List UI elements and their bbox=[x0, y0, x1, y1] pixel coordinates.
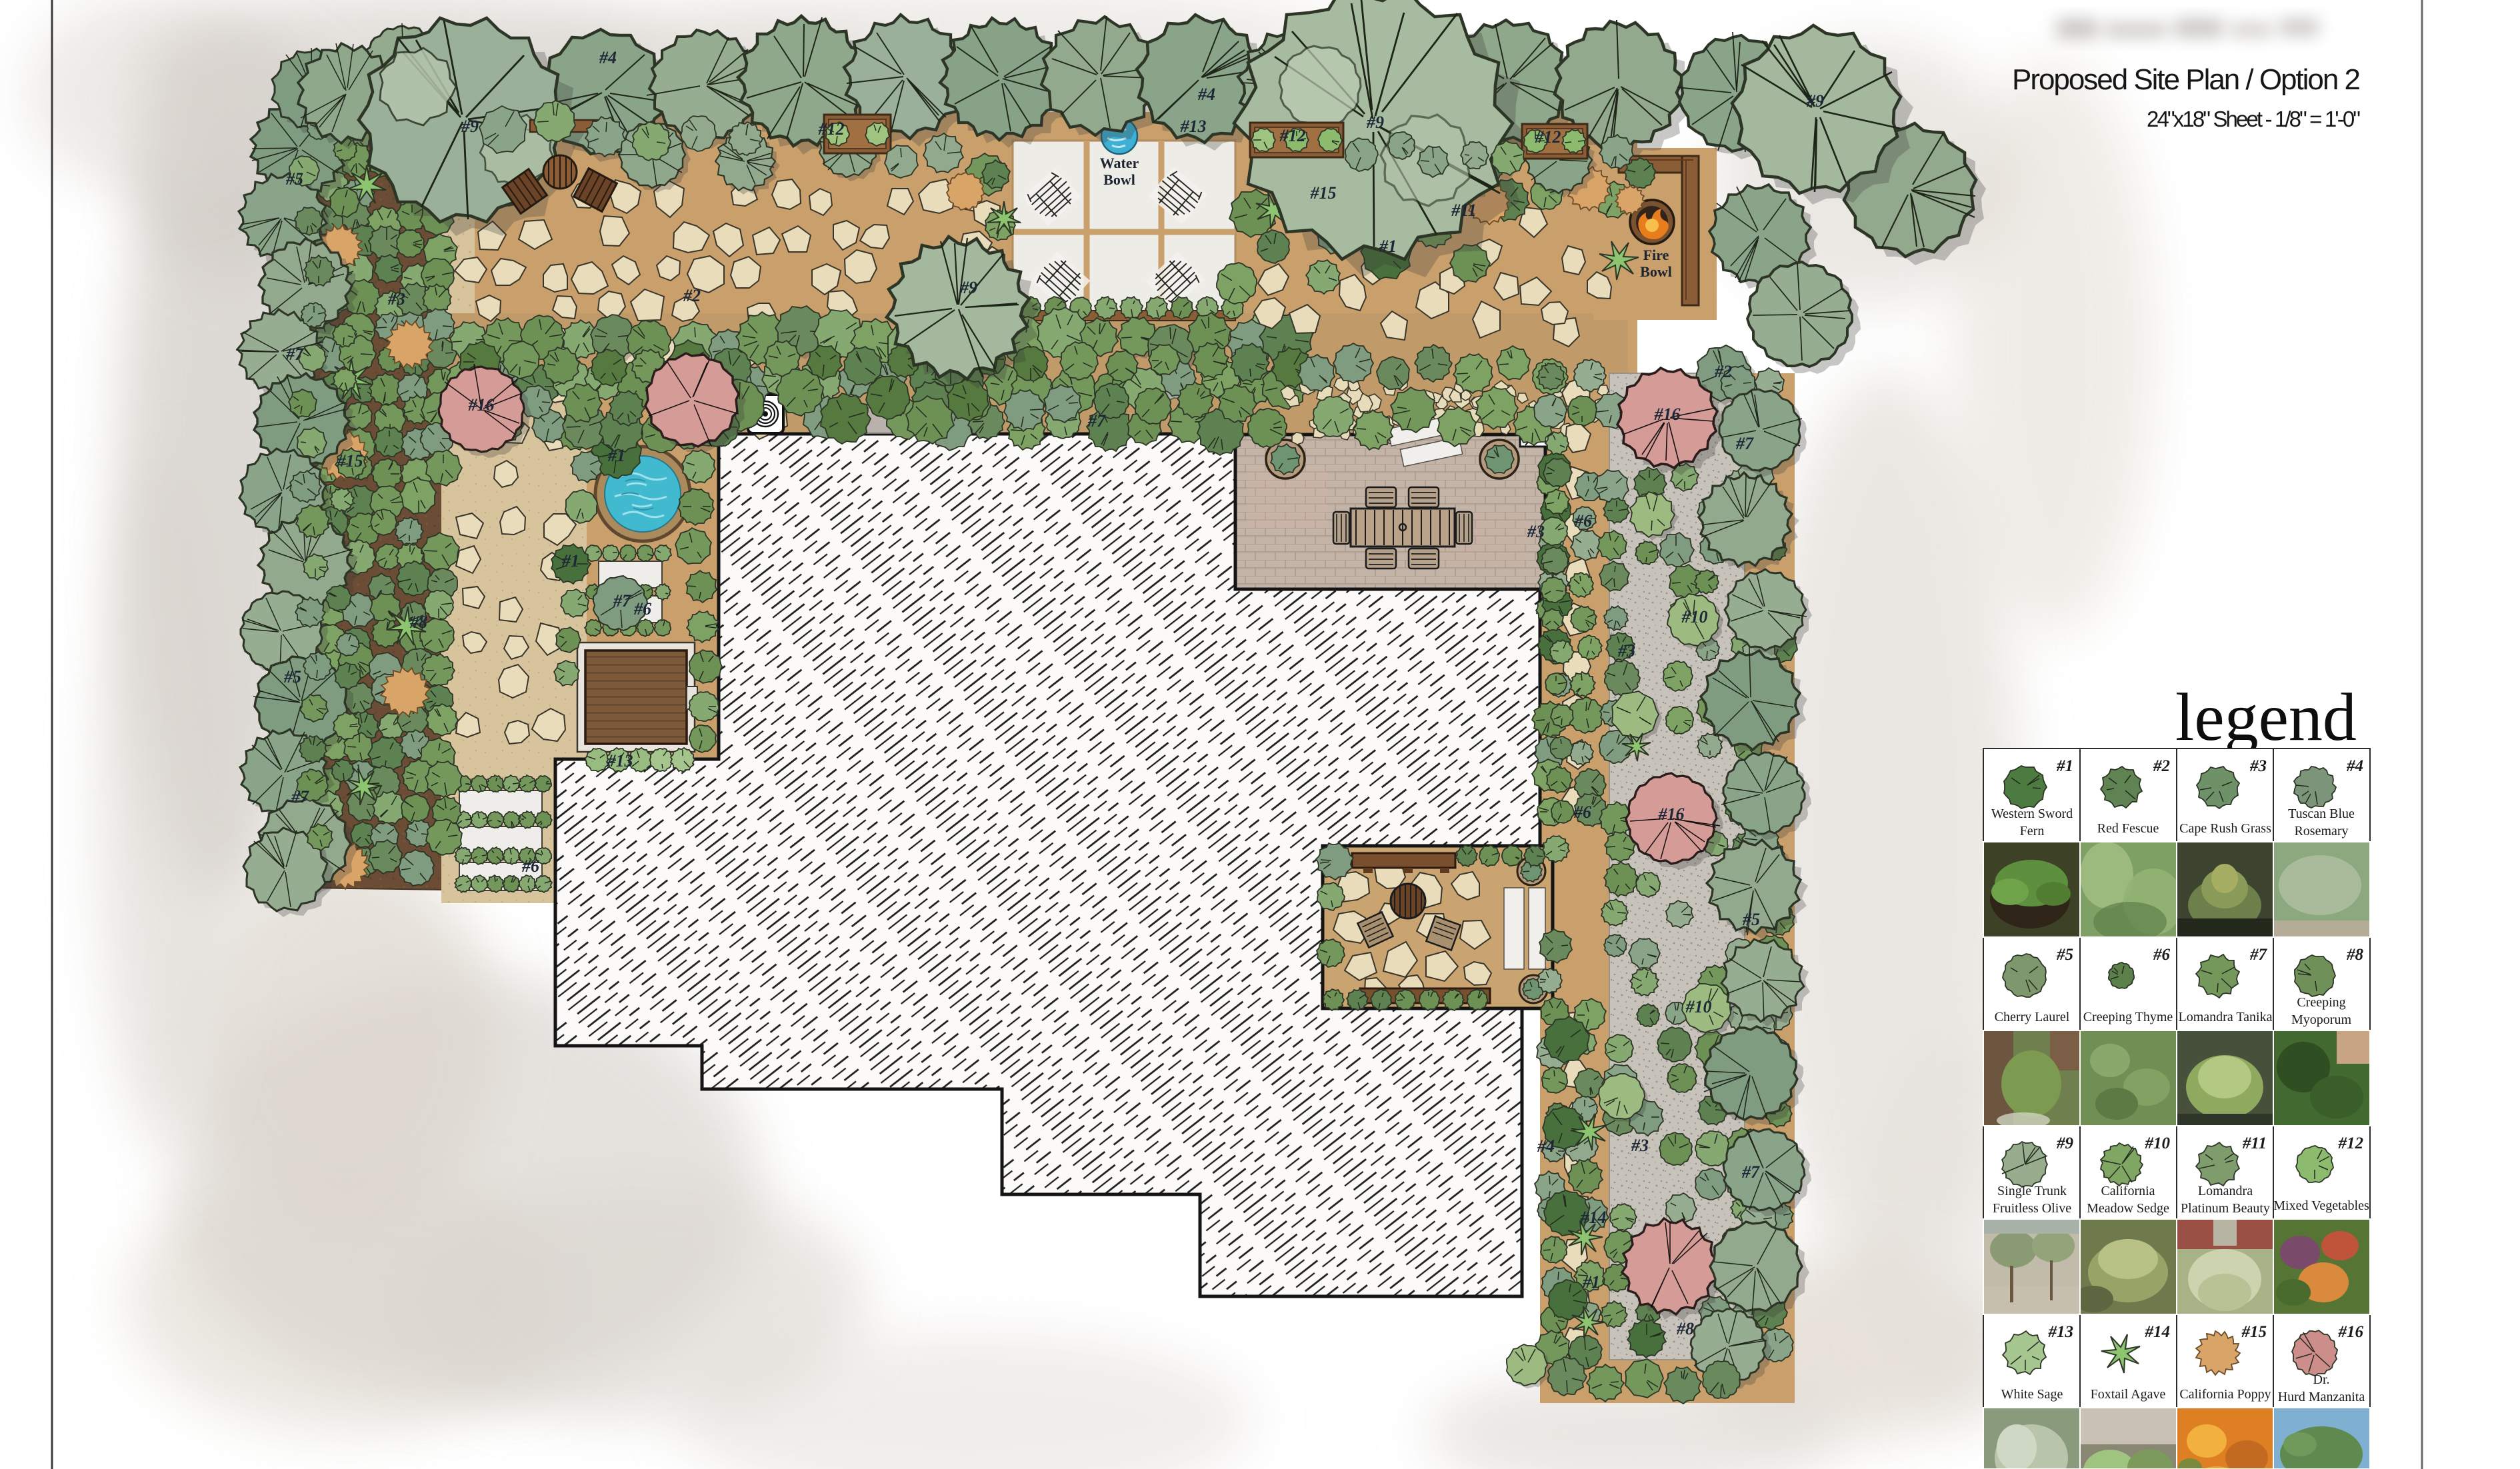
svg-text:Red Fescue: Red Fescue bbox=[2097, 821, 2159, 836]
svg-text:#10: #10 bbox=[1685, 997, 1712, 1016]
svg-text:#15: #15 bbox=[2241, 1323, 2267, 1341]
svg-text:#6: #6 bbox=[2153, 946, 2171, 964]
svg-text:#12: #12 bbox=[1279, 126, 1306, 145]
svg-text:#6: #6 bbox=[633, 599, 651, 619]
svg-text:#6: #6 bbox=[521, 856, 539, 876]
svg-text:#12: #12 bbox=[818, 119, 845, 139]
svg-text:#7: #7 bbox=[2249, 946, 2268, 964]
svg-text:#2: #2 bbox=[683, 286, 701, 305]
svg-text:White Sage: White Sage bbox=[2001, 1387, 2063, 1402]
svg-text:Fire: Fire bbox=[1643, 247, 1669, 263]
svg-text:#12: #12 bbox=[1535, 127, 1561, 147]
svg-text:#8: #8 bbox=[409, 613, 427, 632]
svg-text:#5: #5 bbox=[1742, 910, 1760, 929]
svg-text:legend: legend bbox=[2175, 680, 2357, 755]
svg-text:#3: #3 bbox=[1527, 522, 1545, 541]
svg-text:#1: #1 bbox=[2056, 757, 2073, 775]
svg-text:Single Trunk: Single Trunk bbox=[1997, 1184, 2067, 1198]
svg-text:#16: #16 bbox=[1658, 804, 1685, 824]
svg-text:#11: #11 bbox=[1451, 201, 1477, 220]
svg-text:#15: #15 bbox=[1310, 183, 1337, 203]
svg-text:Cherry Laurel: Cherry Laurel bbox=[1995, 1010, 2070, 1024]
svg-text:#5: #5 bbox=[285, 169, 303, 189]
svg-text:#9: #9 bbox=[1806, 91, 1824, 111]
svg-text:#9: #9 bbox=[461, 117, 479, 136]
svg-text:Proposed Site Plan / Option 2: Proposed Site Plan / Option 2 bbox=[2012, 63, 2361, 96]
svg-text:#3: #3 bbox=[1617, 641, 1635, 661]
svg-text:Water: Water bbox=[1100, 155, 1139, 171]
svg-text:California: California bbox=[2101, 1184, 2155, 1198]
svg-text:#7: #7 bbox=[1735, 434, 1754, 453]
svg-text:Fern: Fern bbox=[2020, 824, 2045, 838]
svg-text:#13: #13 bbox=[2048, 1323, 2074, 1341]
svg-text:#4: #4 bbox=[599, 48, 617, 67]
svg-text:#6: #6 bbox=[1574, 511, 1592, 531]
svg-text:#9: #9 bbox=[959, 278, 977, 297]
svg-text:Cape Rush Grass: Cape Rush Grass bbox=[2179, 821, 2271, 836]
svg-text:Creeping Thyme: Creeping Thyme bbox=[2083, 1010, 2173, 1024]
svg-text:#4: #4 bbox=[1197, 85, 1215, 104]
svg-text:#10: #10 bbox=[1681, 607, 1708, 627]
svg-text:#8: #8 bbox=[2346, 946, 2364, 964]
svg-text:#5: #5 bbox=[2056, 946, 2073, 964]
svg-text:Dr.: Dr. bbox=[2313, 1372, 2330, 1387]
svg-text:#1: #1 bbox=[1379, 237, 1397, 256]
svg-text:Lomandra: Lomandra bbox=[2198, 1184, 2253, 1198]
svg-text:Myoporum: Myoporum bbox=[2291, 1012, 2351, 1027]
svg-text:#7: #7 bbox=[291, 787, 309, 806]
svg-text:Foxtail Agave: Foxtail Agave bbox=[2091, 1387, 2166, 1402]
svg-text:#2: #2 bbox=[2153, 757, 2170, 775]
svg-text:#16: #16 bbox=[1654, 405, 1681, 424]
svg-text:Meadow Sedge: Meadow Sedge bbox=[2087, 1201, 2169, 1216]
svg-text:#7: #7 bbox=[285, 345, 304, 364]
svg-text:Bowl: Bowl bbox=[1640, 263, 1672, 280]
svg-text:#4: #4 bbox=[2346, 757, 2363, 775]
svg-text:#12: #12 bbox=[2338, 1134, 2364, 1152]
svg-text:#1: #1 bbox=[561, 551, 579, 571]
svg-text:#3: #3 bbox=[2249, 757, 2267, 775]
svg-text:#9: #9 bbox=[1366, 113, 1384, 132]
svg-text:#16: #16 bbox=[2338, 1323, 2364, 1341]
svg-text:#11: #11 bbox=[2242, 1134, 2267, 1152]
svg-text:#16: #16 bbox=[468, 395, 495, 415]
svg-text:Creeping: Creeping bbox=[2297, 995, 2345, 1010]
svg-text:#13: #13 bbox=[607, 751, 633, 770]
svg-text:#10: #10 bbox=[2145, 1134, 2171, 1152]
svg-text:#7: #7 bbox=[613, 591, 631, 611]
svg-text:Fruitless Olive: Fruitless Olive bbox=[1993, 1201, 2071, 1216]
svg-text:#1: #1 bbox=[607, 446, 625, 465]
svg-text:Platinum Beauty: Platinum Beauty bbox=[2181, 1201, 2270, 1216]
svg-text:#4: #4 bbox=[1537, 1136, 1555, 1156]
svg-text:#15: #15 bbox=[337, 451, 363, 471]
svg-text:#3: #3 bbox=[1631, 1136, 1649, 1155]
svg-text:#7: #7 bbox=[1741, 1162, 1760, 1182]
svg-text:#9: #9 bbox=[2056, 1134, 2074, 1152]
svg-text:#14: #14 bbox=[2145, 1323, 2171, 1341]
svg-text:#1: #1 bbox=[1582, 1272, 1600, 1292]
svg-text:Lomandra Tanika: Lomandra Tanika bbox=[2179, 1010, 2273, 1024]
svg-text:Mixed Vegetables: Mixed Vegetables bbox=[2273, 1198, 2369, 1213]
svg-text:#14: #14 bbox=[1580, 1208, 1607, 1227]
svg-text:Tuscan Blue: Tuscan Blue bbox=[2288, 806, 2355, 821]
svg-text:Hurd Manzanita: Hurd Manzanita bbox=[2278, 1390, 2365, 1404]
svg-text:Western Sword: Western Sword bbox=[1991, 806, 2073, 821]
svg-text:Bowl: Bowl bbox=[1103, 171, 1135, 188]
svg-text:Rosemary: Rosemary bbox=[2294, 824, 2348, 838]
svg-text:#3: #3 bbox=[387, 289, 405, 309]
svg-text:#6: #6 bbox=[1573, 802, 1591, 822]
svg-text:California Poppy: California Poppy bbox=[2179, 1387, 2271, 1402]
svg-text:#2: #2 bbox=[1714, 362, 1732, 381]
svg-text:24"x18" Sheet - 1/8" = 1'-0": 24"x18" Sheet - 1/8" = 1'-0" bbox=[2147, 107, 2361, 131]
svg-text:#13: #13 bbox=[1180, 117, 1207, 136]
svg-text:#7: #7 bbox=[1087, 411, 1106, 431]
svg-text:#8: #8 bbox=[1676, 1319, 1694, 1338]
svg-text:#5: #5 bbox=[283, 667, 301, 687]
